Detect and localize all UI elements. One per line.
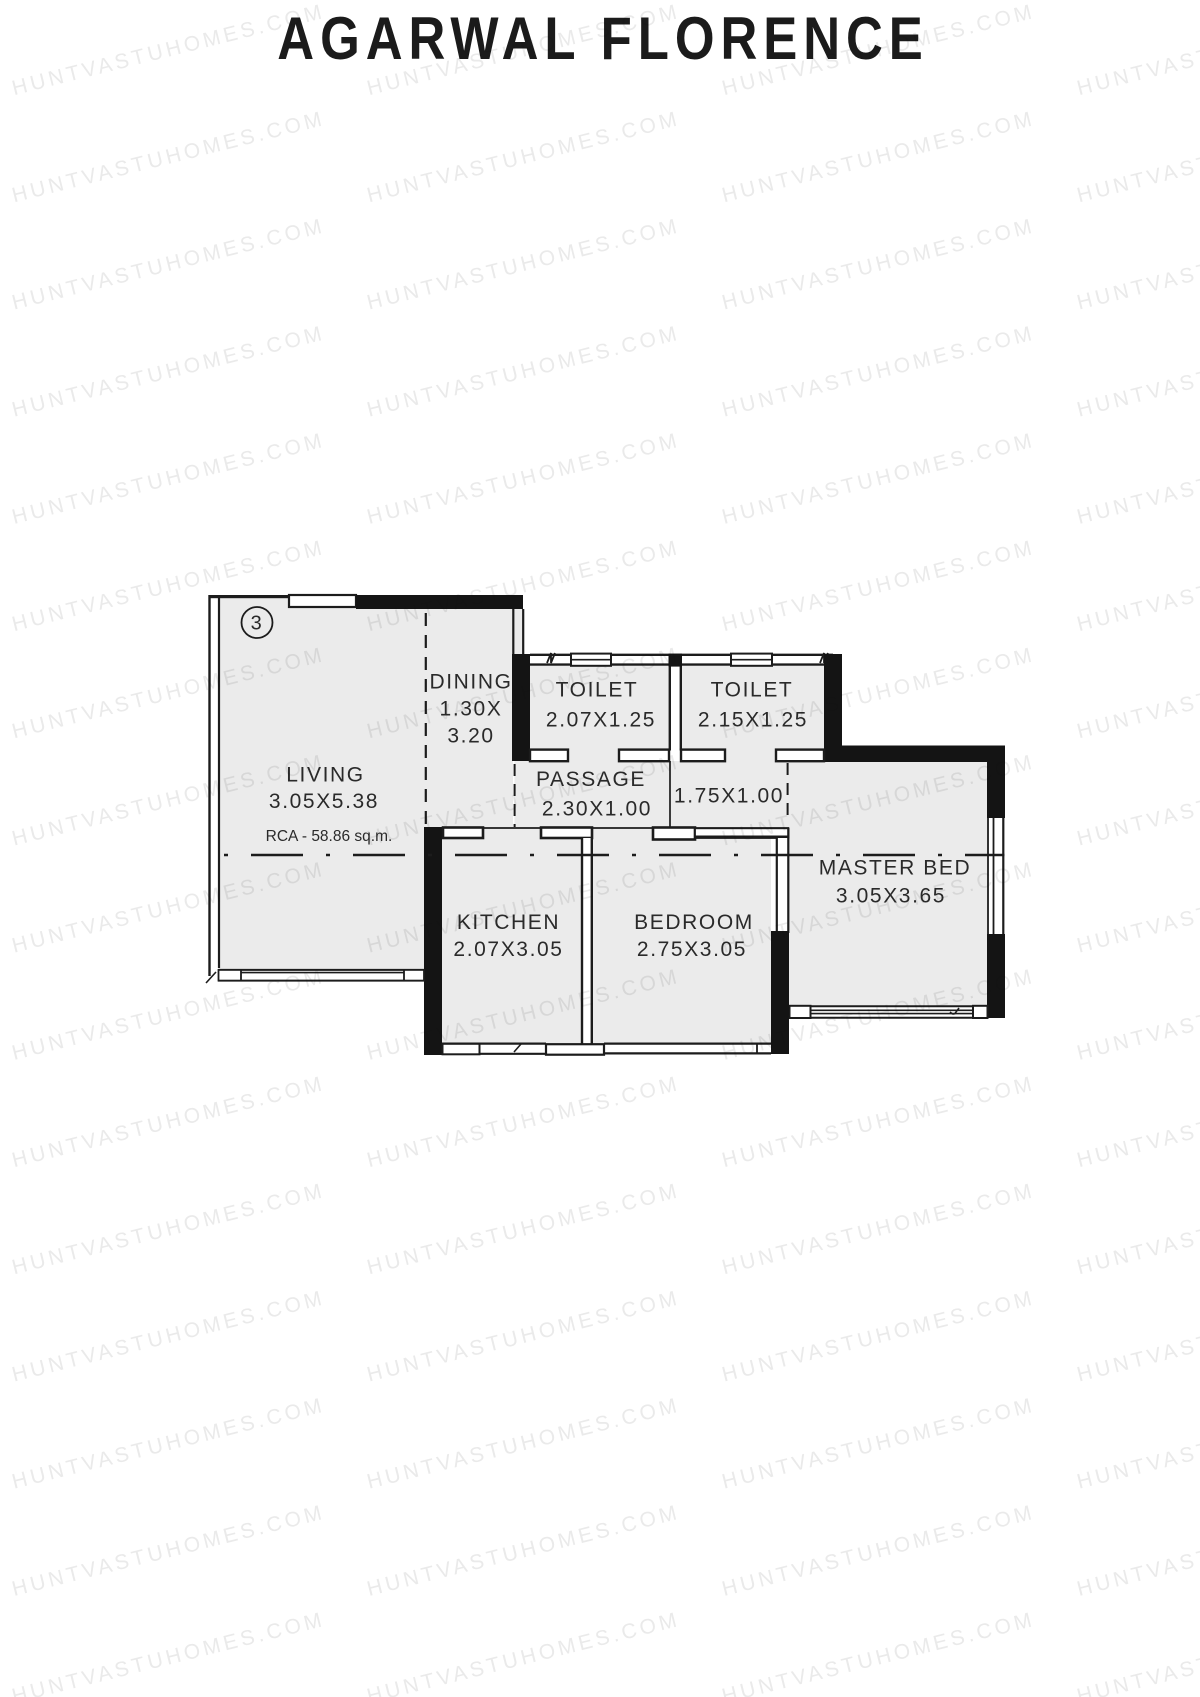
svg-text:TOILET: TOILET bbox=[711, 679, 794, 702]
svg-text:3.05X5.38: 3.05X5.38 bbox=[269, 790, 379, 813]
svg-text:MASTER BED: MASTER BED bbox=[819, 857, 972, 880]
svg-text:1.75X1.00: 1.75X1.00 bbox=[674, 785, 784, 808]
svg-text:2.07X3.05: 2.07X3.05 bbox=[453, 938, 563, 961]
svg-text:3.20: 3.20 bbox=[447, 725, 494, 748]
svg-text:3: 3 bbox=[251, 613, 264, 635]
svg-text:2.07X1.25: 2.07X1.25 bbox=[546, 709, 656, 732]
